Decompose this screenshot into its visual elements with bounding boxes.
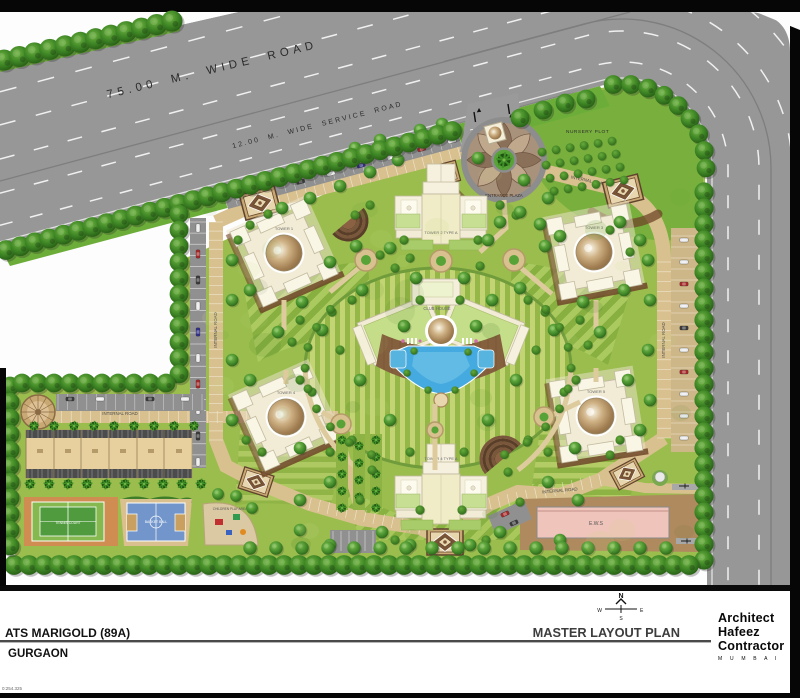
- svg-text:INTERNAL ROAD: INTERNAL ROAD: [102, 411, 137, 416]
- svg-text:Architect: Architect: [718, 611, 775, 625]
- svg-text:GURGAON: GURGAON: [8, 648, 68, 660]
- svg-text:CLUB HOUSE: CLUB HOUSE: [423, 306, 450, 311]
- svg-text:ENTRANCE PLAZA: ENTRANCE PLAZA: [485, 193, 523, 198]
- svg-text:0:254.325: 0:254.325: [2, 686, 23, 691]
- svg-text:NURSERY PLOT: NURSERY PLOT: [566, 129, 609, 135]
- svg-text:W: W: [597, 608, 602, 614]
- svg-text:E.W.S: E.W.S: [589, 521, 604, 527]
- svg-text:ATS MARIGOLD (89A): ATS MARIGOLD (89A): [5, 626, 130, 640]
- svg-text:Hafeez: Hafeez: [718, 625, 760, 639]
- svg-text:Contractor: Contractor: [718, 639, 784, 653]
- svg-text:BASKET BALL: BASKET BALL: [145, 520, 168, 524]
- svg-text:MASTER LAYOUT PLAN: MASTER LAYOUT PLAN: [533, 625, 680, 640]
- svg-text:TOWER 4 TYPE A: TOWER 4 TYPE A: [424, 456, 458, 461]
- svg-text:TOWER 5: TOWER 5: [587, 389, 606, 394]
- svg-text:TOWER 1: TOWER 1: [275, 226, 294, 231]
- svg-text:M U M B A I: M U M B A I: [718, 656, 780, 662]
- svg-text:CHILDREN PLAY AREA: CHILDREN PLAY AREA: [213, 507, 248, 511]
- svg-text:TENNIS COURT: TENNIS COURT: [55, 521, 80, 525]
